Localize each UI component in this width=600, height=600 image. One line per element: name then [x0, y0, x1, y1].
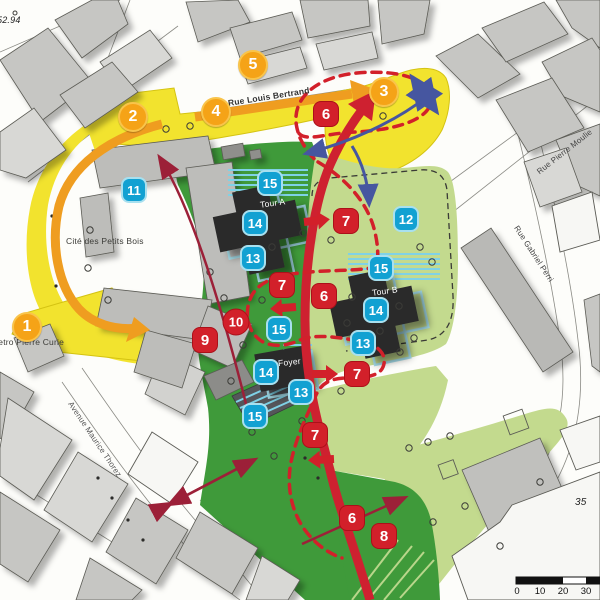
- street-label-pierre-moulie: Rue Pierre Moulie: [535, 127, 594, 176]
- map-marker-7c: 7: [344, 361, 370, 387]
- map-marker-15b: 15: [368, 255, 394, 281]
- map-marker-15c: 15: [266, 316, 292, 342]
- map-marker-3: 3: [369, 77, 399, 107]
- map-marker-7a: 7: [333, 208, 359, 234]
- map-marker-14c: 14: [253, 359, 279, 385]
- map-marker-13c: 13: [288, 379, 314, 405]
- map-marker-11: 11: [121, 177, 147, 203]
- label-overlay: Rue Louis Bertrand Rue Pierre Moulie Rue…: [0, 0, 600, 600]
- map-marker-4: 4: [201, 97, 231, 127]
- map-marker-1: 1: [12, 312, 42, 342]
- scale-tick-20: 20: [558, 586, 569, 597]
- map-marker-10: 10: [223, 309, 250, 336]
- scale-tick-30: 30: [581, 586, 592, 597]
- street-label-louis-bertrand: Rue Louis Bertrand: [227, 85, 310, 108]
- scale-tick-0: 0: [514, 586, 519, 597]
- map-marker-5: 5: [238, 50, 268, 80]
- street-label-gabriel-perri: Rue Gabriel Perri: [512, 224, 555, 284]
- map-marker-15a: 15: [257, 170, 283, 196]
- place-label-cite: Cité des Petits Bois: [66, 236, 144, 246]
- map-marker-12: 12: [393, 206, 419, 232]
- map-marker-13a: 13: [240, 245, 266, 271]
- map-marker-6c: 6: [339, 505, 365, 531]
- map-marker-6a: 6: [313, 101, 339, 127]
- map-marker-7b: 7: [269, 272, 295, 298]
- scale-tick-10: 10: [535, 586, 546, 597]
- map-marker-6b: 6: [311, 283, 337, 309]
- map-stage: Rue Louis Bertrand Rue Pierre Moulie Rue…: [0, 0, 600, 600]
- map-marker-15d: 15: [242, 403, 268, 429]
- map-marker-9: 9: [192, 327, 218, 353]
- street-label-maurice-thorez: Avenue Maurice Thorez: [66, 400, 123, 479]
- spot-elevation-2: 35: [575, 497, 587, 508]
- map-marker-7d: 7: [302, 422, 328, 448]
- map-marker-8: 8: [371, 523, 397, 549]
- map-marker-13b: 13: [350, 330, 376, 356]
- tower-b-label: Tour B: [371, 284, 398, 297]
- foyer-label: Foyer: [278, 356, 302, 368]
- map-marker-2: 2: [118, 102, 148, 132]
- tower-a-label: Tour A: [259, 196, 285, 209]
- map-marker-14b: 14: [363, 297, 389, 323]
- spot-elevation-1: 52.94: [0, 15, 21, 25]
- map-marker-14a: 14: [242, 210, 268, 236]
